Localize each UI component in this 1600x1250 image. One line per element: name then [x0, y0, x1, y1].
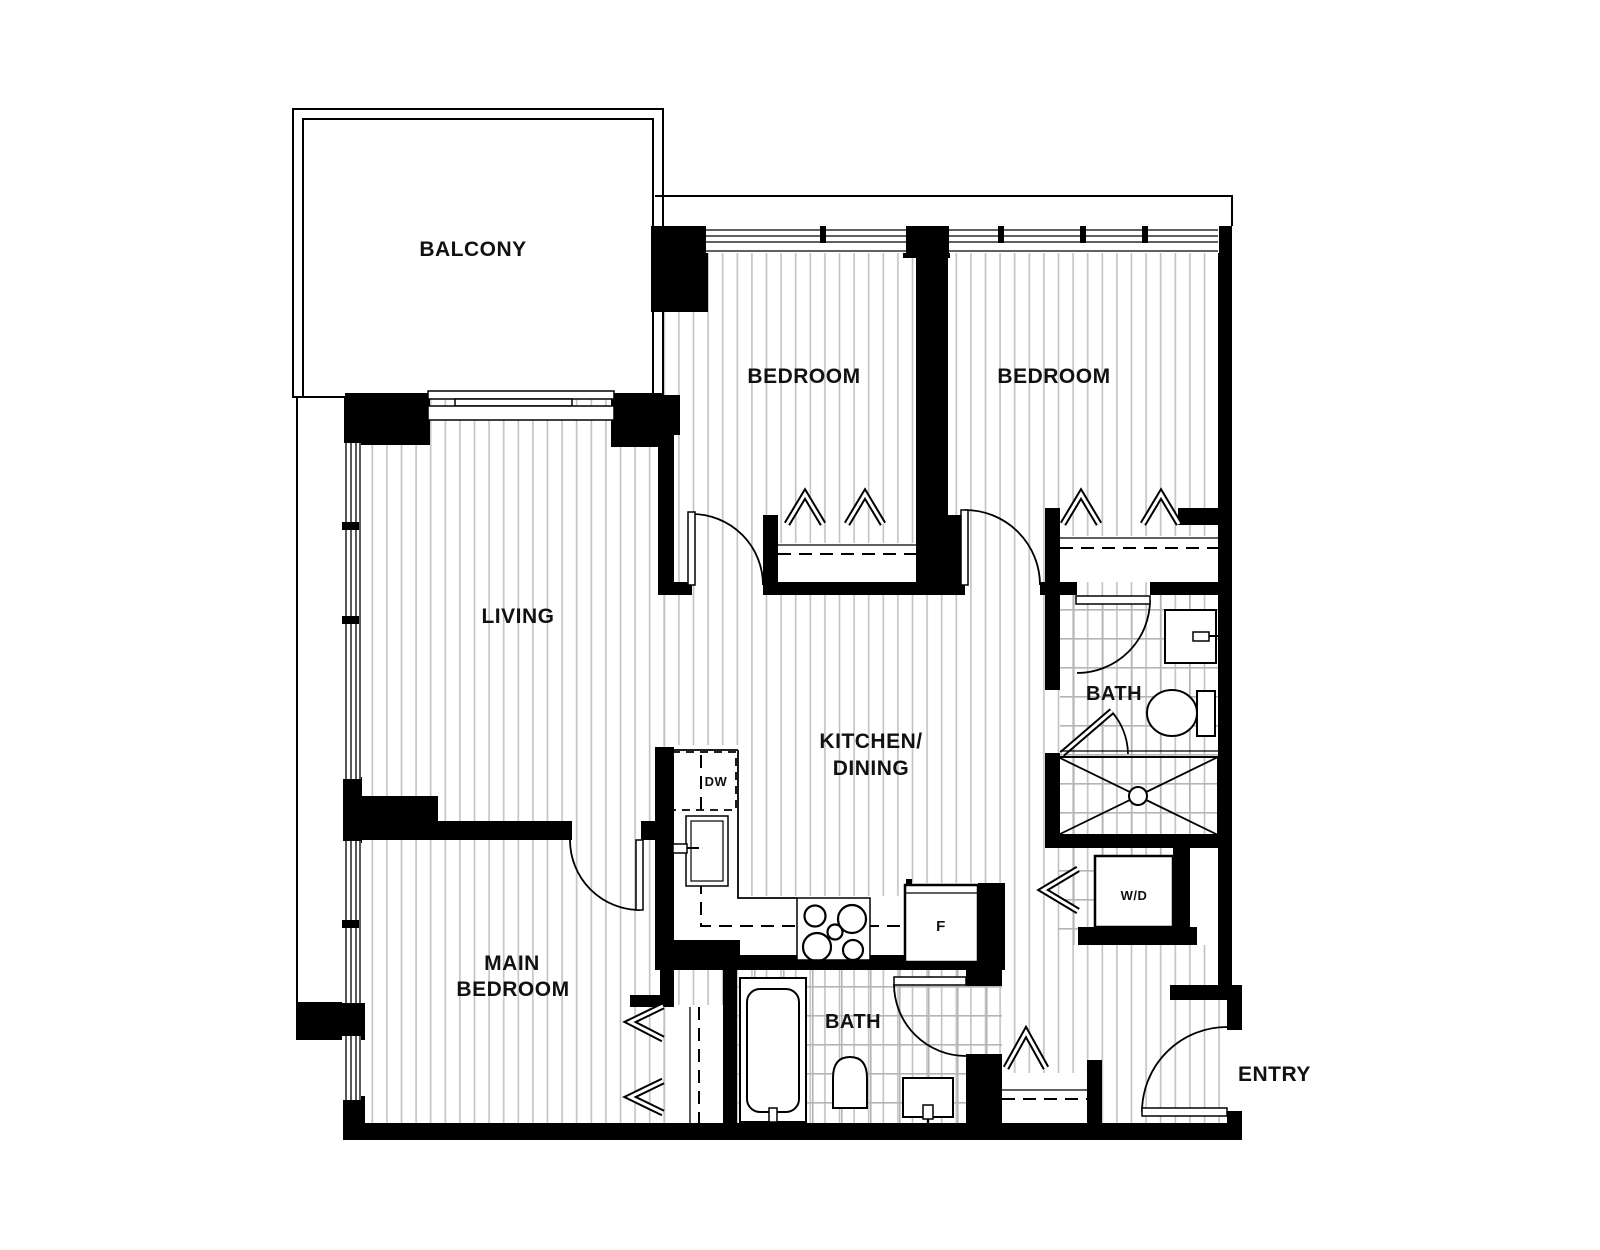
bathtub — [740, 978, 806, 1131]
toilet-lower — [833, 1057, 867, 1108]
bedroom2-window — [949, 226, 1219, 253]
bedroom2-label: BEDROOM — [997, 365, 1110, 388]
balcony-label: BALCONY — [419, 238, 526, 261]
vanity-sink-upper — [1165, 610, 1219, 663]
entry-label: ENTRY — [1238, 1063, 1311, 1086]
main-bedroom-label-line1: MAIN — [484, 952, 540, 975]
bath-upper-label: BATH — [1086, 683, 1142, 705]
fridge-label: F — [936, 918, 946, 935]
bedroom1-label: BEDROOM — [747, 365, 860, 388]
living-label: LIVING — [481, 605, 554, 628]
floor-plan-page: BALCONY BEDROOM BEDROOM LIVING KITCHEN/ … — [0, 0, 1600, 1250]
kitchen-label-line1: KITCHEN/ — [819, 730, 922, 753]
kitchen-label-line2: DINING — [833, 757, 910, 780]
floor-plan-canvas: BALCONY BEDROOM BEDROOM LIVING KITCHEN/ … — [0, 0, 1600, 1250]
building-edge-line — [655, 196, 1232, 226]
washer-dryer-label: W/D — [1121, 888, 1148, 903]
cooktop — [797, 898, 870, 961]
bath-lower-label: BATH — [825, 1011, 881, 1033]
exterior-projection — [297, 397, 345, 1003]
main-bedroom-windows — [342, 841, 361, 1100]
dishwasher-label: DW — [705, 774, 728, 789]
balcony-sliding-door — [428, 391, 614, 420]
toilet-upper — [1147, 690, 1215, 736]
main-bedroom-label-line2: BEDROOM — [456, 978, 569, 1001]
living-windows — [342, 443, 361, 779]
bedroom1-window — [706, 226, 906, 253]
